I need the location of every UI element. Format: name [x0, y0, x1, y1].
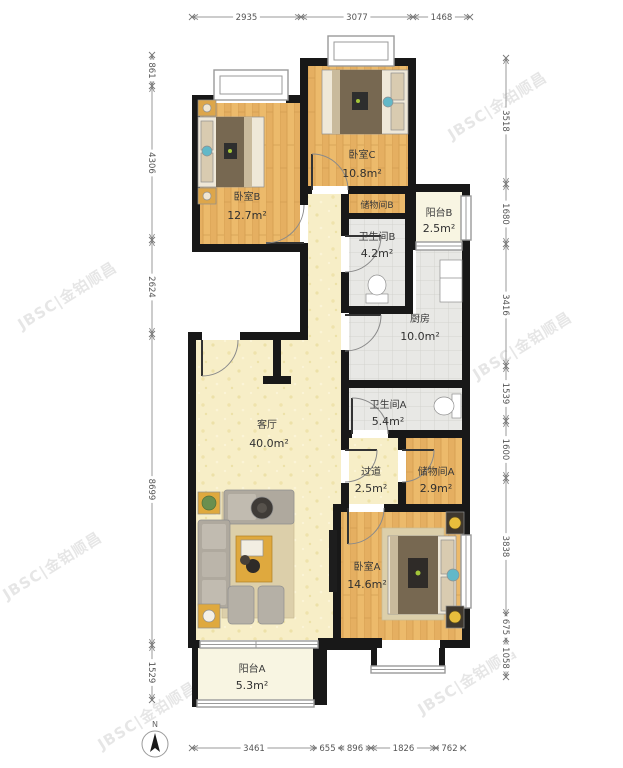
dimension-label: 2935 [236, 13, 258, 23]
room-area-bedroom-a: 14.6m² [347, 578, 387, 591]
watermark-text: JBSC|金铂顺昌 [14, 258, 121, 335]
dimension-label: 1539 [500, 383, 510, 405]
room-area-kitchen: 10.0m² [400, 330, 440, 343]
room-label-balcony-b: 阳台B [426, 206, 453, 219]
bedroom-c-bay-window [328, 36, 394, 66]
bathroom-b-toilet [366, 275, 388, 303]
room-label-storage-a: 储物间A [418, 465, 455, 478]
dimension-label: 1680 [500, 203, 510, 225]
dimension-label: 655 [319, 744, 335, 754]
floor-plan-page: JBSC|金铂顺昌 JBSC|金铂顺昌 JBSC|金铂顺昌 JBSC|金铂顺昌 … [0, 0, 623, 768]
room-label-bedroom-c: 卧室C [349, 148, 376, 161]
watermark-text: JBSC|金铂顺昌 [0, 528, 106, 605]
bedroom-c-furniture [322, 70, 408, 134]
bedroom-a-side-window [461, 535, 471, 608]
dimension-label: 2624 [146, 276, 156, 298]
living-balcony-slider [200, 641, 318, 648]
dimension-label: 896 [347, 744, 363, 754]
compass-north-label: N [152, 720, 158, 729]
bedroom-b-bay-window [214, 70, 288, 100]
floor-plan-svg: JBSC|金铂顺昌 JBSC|金铂顺昌 JBSC|金铂顺昌 JBSC|金铂顺昌 … [0, 0, 623, 768]
room-label-hallway: 过道 [361, 465, 381, 478]
dimension-label: 1600 [500, 439, 510, 461]
dimension-label: 1468 [431, 13, 453, 23]
dimension-label: 4306 [146, 152, 156, 174]
room-area-balcony-a: 5.3m² [236, 679, 269, 692]
room-label-bedroom-a: 卧室A [354, 560, 381, 573]
dimension-label: 8699 [146, 479, 156, 501]
bedroom-a-furniture [382, 512, 464, 628]
room-label-bedroom-b: 卧室B [234, 190, 261, 203]
room-kitchen-floor [349, 314, 462, 380]
dimension-label: 3461 [243, 744, 265, 754]
dimension-label: 3518 [500, 110, 510, 132]
room-label-balcony-a: 阳台A [239, 662, 266, 675]
dimension-label: 762 [441, 744, 457, 754]
corridor-floor [308, 194, 341, 340]
room-area-balcony-b: 2.5m² [423, 222, 456, 235]
room-area-bathroom-b: 4.2m² [361, 247, 394, 260]
room-area-bathroom-a: 5.4m² [372, 415, 405, 428]
dimension-label: 1529 [146, 662, 156, 684]
room-area-living: 40.0m² [249, 437, 289, 450]
dimension-bottom: 34616558961826762 [189, 743, 466, 755]
room-area-storage-a: 2.9m² [420, 482, 453, 495]
balcony-b-window [461, 196, 471, 240]
room-label-living: 客厅 [257, 418, 277, 431]
balcony-a-window [197, 700, 314, 707]
dimension-label: 3838 [500, 536, 510, 558]
dimension-label: 1058 [500, 647, 510, 669]
dimension-label: 3077 [346, 13, 368, 23]
dimension-label: 3416 [500, 294, 510, 316]
room-label-storage-b: 储物间B [360, 199, 393, 211]
room-area-bedroom-c: 10.8m² [342, 167, 382, 180]
dimension-label: 861 [146, 62, 156, 78]
dimension-label: 1826 [393, 744, 415, 754]
dimension-top: 293530771468 [189, 12, 473, 24]
watermark-text: JBSC|金铂顺昌 [469, 308, 576, 385]
dimension-left: 8614306262486991529 [146, 52, 158, 703]
bedroom-a-bay-window [371, 648, 445, 673]
room-label-kitchen: 厨房 [410, 312, 430, 325]
dimension-label: 675 [500, 619, 510, 635]
kitchen-fridge [440, 260, 462, 302]
room-area-hallway: 2.5m² [355, 482, 388, 495]
room-label-bathroom-b: 卫生间B [359, 230, 396, 243]
watermark-text: JBSC|金铂顺昌 [444, 68, 551, 145]
room-label-bathroom-a: 卫生间A [370, 398, 407, 411]
kitchen-balcony-slider [416, 242, 462, 250]
room-area-bedroom-b: 12.7m² [227, 209, 267, 222]
